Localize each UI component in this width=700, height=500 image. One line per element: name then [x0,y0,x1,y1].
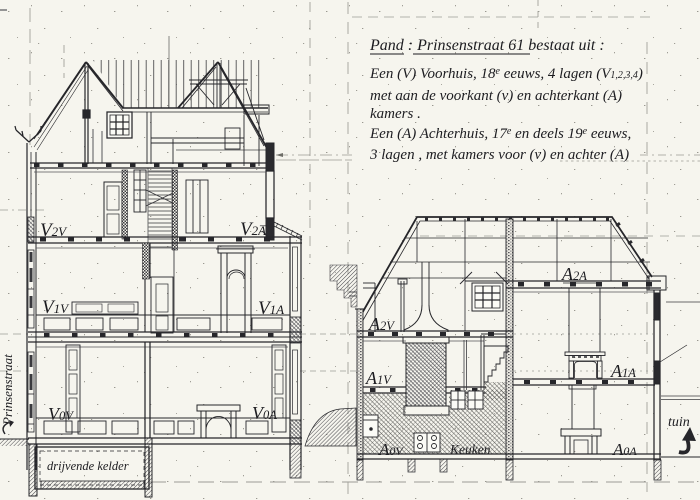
svg-text:Prinsenstraat: Prinsenstraat [0,354,15,426]
svg-text:met aan de voorkant (v) en ach: met aan de voorkant (v) en achterkant (A… [370,88,622,104]
svg-text:Een (V) Voorhuis, 18e eeuws, 4: Een (V) Voorhuis, 18e eeuws, 4 lagen (V1… [369,66,643,82]
svg-text:Pand : Prinsenstraat 61 bestaa: Pand : Prinsenstraat 61 bestaat uit : [369,37,605,54]
svg-text:tuin: tuin [668,415,690,430]
svg-text:kamers .: kamers . [370,106,421,122]
svg-text:drijvende kelder: drijvende kelder [47,459,129,473]
svg-text:3 lagen , met kamers voor (v): 3 lagen , met kamers voor (v) en achter … [369,147,629,163]
svg-text:Keuken: Keuken [449,442,491,457]
svg-text:Een (A) Achterhuis, 17e en dee: Een (A) Achterhuis, 17e en deels 19e eeu… [369,126,631,142]
svg-text:V1A: V1A [258,298,284,319]
